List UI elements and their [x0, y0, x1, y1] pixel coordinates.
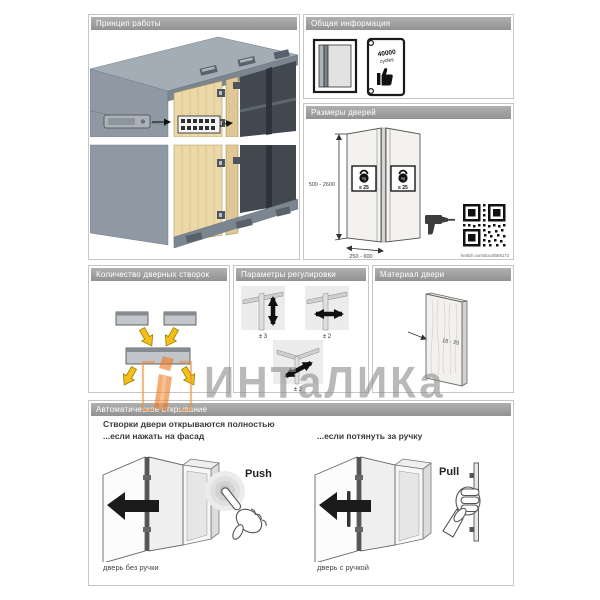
weight-badge: kg ≤ 25	[391, 166, 415, 191]
svg-text:≤ 25: ≤ 25	[359, 185, 369, 191]
auto-intro-line1: Створки двери открываются полностью	[103, 419, 275, 429]
thickness-arrow	[408, 332, 426, 339]
panel-auto-opening: Автоматическое открывание Створки двери …	[88, 400, 514, 586]
panel-principle-header: Принцип работы	[91, 17, 297, 30]
one-leaf-bar	[126, 348, 190, 364]
svg-text:kg: kg	[401, 177, 405, 181]
folding-door-no-handle	[103, 457, 219, 562]
caption-no-handle: дверь без ручки	[103, 563, 159, 572]
material-diagram: 16 - 25	[374, 282, 512, 392]
svg-text:≤ 25: ≤ 25	[398, 185, 408, 191]
folding-door-with-handle	[315, 457, 431, 562]
two-leaf-bars	[116, 312, 196, 325]
push-label: Push	[245, 468, 272, 480]
panel-material: Материал двери 16 - 25	[372, 265, 514, 393]
adjust-horizontal-thumb	[305, 286, 349, 330]
panel-material-header: Материал двери	[375, 268, 511, 281]
caption-handle: дверь с ручкой	[317, 563, 369, 572]
panel-door-sizes: Размеры дверей kg ≤ 25	[303, 103, 514, 260]
leaf-count-diagram	[90, 282, 228, 392]
adjust-depth-thumb	[273, 340, 323, 384]
adjust-vertical-value: ± 3	[259, 334, 268, 340]
qr-code	[461, 202, 508, 249]
width-range-label: 250 - 600	[349, 254, 372, 259]
adjust-depth-value: ± 2	[294, 387, 303, 392]
door-sizes-diagram: kg ≤ 25 kg ≤ 25 500 - 2600 250 - 600	[305, 120, 512, 259]
push-illustration: Push	[99, 447, 299, 562]
panel-leaf-count-header: Количество дверных створок	[91, 268, 227, 281]
brochure-page: Принцип работы	[0, 0, 600, 600]
auto-intro-line2: ...если нажать на фасад	[103, 431, 204, 441]
adjust-vertical-thumb	[241, 286, 285, 330]
panel-adjustment-header: Параметры регулировки	[236, 268, 366, 281]
adjust-horizontal-value: ± 2	[323, 334, 332, 340]
drill-icon	[425, 215, 455, 235]
panel-leaf-count: Количество дверных створок	[88, 265, 230, 393]
weight-badge: kg ≤ 25	[352, 166, 376, 191]
adjustment-diagram: ± 3 ± 2 ± 2	[235, 282, 367, 392]
panel-general-info: Общая информация 40000 cycles	[303, 14, 514, 99]
catalog-icon	[314, 40, 356, 92]
cabinet-lower-view	[90, 145, 298, 248]
auto-intro-right: ...если потянуть за ручку	[317, 431, 422, 441]
cycles-certificate-icon: 40000 cycles	[368, 39, 404, 95]
height-range-label: 500 - 2600	[309, 182, 335, 188]
panel-adjustment: Параметры регулировки	[233, 265, 369, 393]
general-info-icons: 40000 cycles	[312, 35, 432, 97]
panel-general-info-header: Общая информация	[306, 17, 511, 30]
doc-link-label: hettich.com/docs/B66172	[461, 253, 510, 258]
pull-label: Pull	[439, 466, 459, 478]
pull-illustration: Pull	[311, 447, 511, 562]
svg-text:kg: kg	[362, 177, 366, 181]
cabinet-upper-view	[90, 37, 298, 137]
panel-door-sizes-header: Размеры дверей	[306, 106, 511, 119]
panel-auto-opening-header: Автоматическое открывание	[91, 403, 511, 416]
cabinet-illustration	[90, 31, 298, 259]
panel-principle: Принцип работы	[88, 14, 300, 260]
